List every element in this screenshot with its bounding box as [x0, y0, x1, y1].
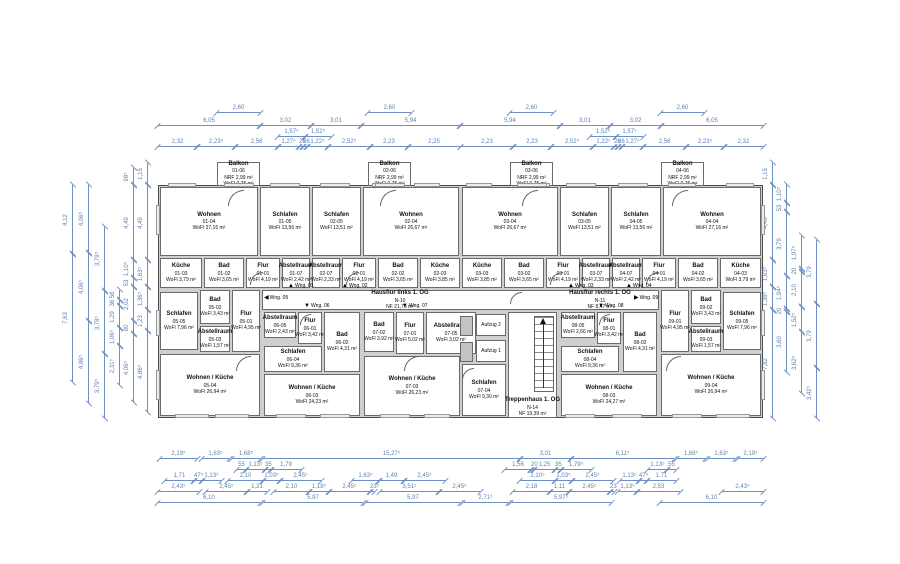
room-area: WoFl 26,67 m² [395, 225, 428, 231]
window-opening [565, 414, 595, 418]
stairwell-area: NF 19,39 m² [519, 411, 547, 417]
room-bad-07-02: Bad07-02WoFl 3,92 m² [364, 312, 394, 352]
room-name: Abstellraum [561, 315, 596, 323]
room-area: WoFl 13,51 m² [320, 225, 353, 231]
entrance-marker-6: ▼Wng. 06 [304, 303, 330, 309]
stair-flight [534, 316, 554, 392]
dimension-horizontal: 2,43⁵ [722, 491, 763, 492]
dimension-horizontal: 1,27⁵ [278, 146, 299, 147]
dimension-horizontal: 6,05 [158, 125, 260, 126]
room-flur-05-01: Flur05-01WoFl 4,95 m² [232, 290, 260, 352]
dimension-value: 1,27⁵ [622, 139, 643, 145]
room-area: WoFl 3,65 m² [209, 277, 239, 283]
room-area: WoFl 3,92 m² [364, 336, 394, 342]
dimension-horizontal: 2,45⁵ [439, 491, 480, 492]
dimension-vertical: 4,49 [772, 185, 773, 260]
dimension-value: 2,23⁵ [686, 139, 724, 145]
dimension-value: 2,43⁵ [158, 484, 199, 490]
dimension-horizontal: 1,49 [379, 480, 404, 481]
dimension-horizontal: 6,10 [660, 502, 763, 503]
room-bad-06-02: Bad06-02WoFl 4,31 m² [324, 312, 360, 372]
dimension-value: 2,53 [637, 484, 680, 490]
room-bad-08-02: Bad08-02WoFl 4,31 m² [623, 312, 657, 372]
entrance-marker-4: ▲Wng. 04 [626, 283, 652, 289]
dimension-horizontal: 3,02 [260, 125, 311, 126]
window-opening [270, 183, 300, 187]
room-name: Küche [473, 263, 491, 271]
dimension-vertical: 1,23 [147, 310, 148, 331]
dimension-horizontal: 1,21 [247, 491, 267, 492]
lift-label: Aufzug 1 [481, 348, 501, 354]
dimension-horizontal: 1,71 [647, 480, 676, 481]
dimension-vertical: 3,79⁵ [104, 227, 105, 291]
dimension-value: 4,06⁵ [124, 361, 130, 375]
room-schlafen-06-04: Schlafen06-04WoFl 9,36 m² [264, 346, 322, 372]
dimension-value: 1,03⁵ [555, 473, 572, 479]
room-area: WoFl 26,94 m² [194, 389, 227, 395]
dimension-value: 1,63⁵ [202, 451, 229, 457]
duct-shaft [460, 316, 473, 336]
dimension-vertical: 4,49 [147, 185, 148, 260]
room-name: Küche [431, 263, 449, 271]
dimension-value: 4,06⁵ [79, 212, 85, 226]
room-name: Küche [731, 263, 749, 271]
dimension-value: 53 [777, 204, 783, 211]
dimension-value: 2,02 [124, 298, 130, 310]
room-name: Wohnen / Küche [187, 375, 234, 383]
dimension-vertical: 2,02 [133, 287, 134, 321]
room-area: WoFl 27,16 m² [193, 225, 226, 231]
dimension-horizontal: 2,60 [661, 112, 704, 113]
dimension-value: 2,45⁵ [206, 484, 247, 490]
dimension-value: 2,45⁵ [572, 473, 613, 479]
dimension-vertical: 1,63⁵ [772, 260, 773, 287]
dimension-horizontal: 6,05 [661, 125, 763, 126]
dimension-horizontal: 23 [610, 491, 614, 492]
lift-aufzug-1: Aufzug 1 [476, 340, 506, 362]
dimension-horizontal: 1,79⁵ [561, 469, 591, 470]
room-area: WoFl 3,79 m² [166, 277, 196, 283]
room-name: Bad [692, 263, 703, 271]
dimension-value: 2,43⁵ [722, 484, 763, 490]
hall-name: Hausflur rechts 1. OG [569, 290, 631, 298]
dimension-value: 2,23 [370, 139, 408, 145]
window-opening [320, 183, 350, 187]
dimension-horizontal: 1,57⁵ [616, 136, 643, 137]
room-area: WoFl 4,95 m² [660, 325, 690, 331]
dimension-vertical: 1,52⁵ [801, 307, 802, 332]
room-area: WoFl 1,57 m² [691, 343, 721, 349]
room-kueche-03-03: Küche03-03WoFl 3,85 m² [462, 258, 502, 288]
dimension-value: 1,13⁵ [246, 462, 265, 468]
room-area: WoFl 3,42 m² [594, 332, 624, 338]
room-wohnen-kueche-06-03: Wohnen / Küche06-03WoFl 24,23 m² [264, 374, 360, 416]
room-abstellraum-02-07: Abstellraum02-07WoFl 2,33 m² [312, 258, 340, 288]
window-opening [761, 205, 765, 235]
room-name: Flur [557, 263, 568, 271]
dimension-value: 2,71⁵ [463, 495, 508, 501]
dimension-value: 5,94 [460, 118, 560, 124]
dimension-value: 1,06⁵ [110, 330, 116, 344]
dimension-value: 2,60 [661, 105, 704, 111]
dimension-value: 80 [124, 324, 130, 331]
room-abstellraum-05-03: Abstellraum05-03WoFl 1,57 m² [200, 326, 230, 352]
dimension-value: 1,18⁵ [309, 484, 329, 490]
dimension-value: 4,86⁵ [138, 364, 144, 378]
room-schlafen-05-05: Schlafen05-05WoFl 7,96 m² [160, 292, 198, 350]
dimension-horizontal: 2,45⁵ [206, 491, 247, 492]
dimension-value: 15,27⁵ [263, 451, 520, 457]
dimension-value: 3,79 [807, 266, 813, 278]
dimension-horizontal: 1,79 [271, 469, 301, 470]
window-opening [517, 183, 547, 187]
dimension-horizontal: 2,25 [408, 146, 460, 147]
room-area: WoFl 3,79 m² [726, 277, 756, 283]
room-name: Abstellraum [689, 329, 724, 337]
dimension-value: 3,78⁵ [95, 315, 101, 329]
entrance-label: Wng. 01 [295, 284, 314, 289]
dimension-horizontal: 5,97 [263, 502, 363, 503]
entrance-label: Wng. 06 [311, 304, 330, 309]
duct-shaft [460, 342, 473, 362]
dimension-horizontal: 1,22⁵ [307, 146, 328, 147]
dimension-value: 2,45⁵ [439, 484, 480, 490]
room-schlafen-03-05: Schlafen03-05WoFl 13,51 m² [560, 187, 609, 256]
dimension-vertical: 3,60 [786, 312, 787, 372]
dimension-horizontal: 2,52⁵ [328, 146, 370, 147]
room-name: Abstellraum [609, 263, 644, 271]
entrance-label: Wng. 03 [575, 284, 594, 289]
dimension-value: 3,62⁵ [792, 355, 798, 369]
room-name: Bad [336, 332, 347, 340]
dimension-horizontal: 5,97⁵ [511, 502, 611, 503]
room-name: Wohnen [197, 212, 221, 220]
dimension-horizontal: 2,45⁵ [329, 491, 370, 492]
dimension-vertical: 3,79 [816, 304, 817, 368]
room-area: WoFl 9,30 m² [469, 394, 499, 400]
dimension-horizontal: 1,68⁵ [232, 458, 260, 459]
dimension-value: 1,52⁵ [305, 129, 331, 135]
room-name: Bad [634, 332, 645, 340]
entrance-triangle-icon: ▶ [634, 295, 639, 301]
dimension-value: 1,57⁵ [278, 129, 305, 135]
dimension-value: 2,18 [513, 484, 550, 490]
dimension-vertical: 3,62⁵ [801, 332, 802, 393]
dimension-vertical: 1,15 [772, 163, 773, 185]
hall-label-hausflur-links-1-og: Hausflur links 1. OGN-10NF 21,76 m² [340, 290, 460, 310]
room-wohnen-02-04: Wohnen02-04WoFl 26,67 m² [363, 187, 459, 256]
dimension-horizontal: 6,11⁵ [571, 458, 674, 459]
room-name: Bad [373, 322, 384, 330]
room-area: WoFl 26,94 m² [695, 389, 728, 395]
room-name: Schlafen [471, 380, 496, 388]
dimension-value: 1,49 [379, 473, 404, 479]
dimension-horizontal: 2,10 [274, 491, 309, 492]
room-bad-04-02: Bad04-02WoFl 3,65 m² [678, 258, 718, 288]
dimension-horizontal: 1,63⁵ [202, 458, 229, 459]
dimension-value: 1,71 [647, 473, 676, 479]
dimension-value: 47⁵ [194, 473, 202, 479]
room-name: Flur [653, 263, 664, 271]
dimension-vertical: 2,10 [801, 272, 802, 307]
dimension-value: 2,52⁵ [328, 139, 370, 145]
room-area: WoFl 3,42 m² [295, 332, 325, 338]
window-opening [716, 414, 750, 418]
dimension-value: 1,68⁵ [232, 451, 260, 457]
dimension-vertical: 7,63 [72, 254, 73, 382]
dimension-value: 1,71 [165, 473, 194, 479]
dimension-value: 47⁵ [639, 473, 647, 479]
room-name: Bad [700, 297, 711, 305]
window-opening [224, 183, 254, 187]
dimension-value: 2,60 [217, 105, 260, 111]
room-area: WoFl 4,31 m² [625, 346, 655, 352]
dimension-value: 1,29 [110, 311, 116, 323]
dimension-value: 1,36⁵ [138, 291, 144, 305]
dimension-vertical: 1,94⁵ [786, 276, 787, 309]
balcony-name: Balkon [521, 161, 541, 169]
dimension-horizontal: 2,52⁵ [551, 146, 593, 147]
dimension-value: 4,06⁵ [79, 280, 85, 294]
dimension-value: 1,23 [138, 315, 144, 327]
dimension-value: 3,01 [311, 118, 361, 124]
room-name: Flur [240, 311, 251, 319]
dimension-horizontal: 1,68⁵ [677, 458, 705, 459]
dimension-value: 6,10 [660, 495, 763, 501]
dimension-horizontal: 1,22⁵ [593, 146, 614, 147]
dimension-vertical: 1,97⁵ [801, 236, 802, 269]
dimension-value: 2,23 [461, 139, 513, 145]
window-opening [618, 183, 648, 187]
dimension-value: 3,79⁵ [95, 379, 101, 393]
window-opening [424, 414, 450, 418]
dimension-value: 1,63⁵ [708, 451, 735, 457]
dimension-value: 3,79 [807, 330, 813, 342]
entrance-marker-1: ▲Wng. 01 [288, 283, 314, 289]
room-area: WoFl 1,57 m² [200, 343, 230, 349]
dimension-value: 2,32 [158, 139, 197, 145]
dimension-value: 1,94⁵ [777, 285, 783, 299]
dimension-horizontal: 6,10 [158, 502, 260, 503]
room-name: Wohnen [399, 212, 423, 220]
room-area: WoFl 5,02 m² [395, 337, 425, 343]
room-area: WoFl 7,96 m² [164, 325, 194, 331]
room-kueche-02-03: Küche02-03WoFl 3,85 m² [420, 258, 460, 288]
balcony-name: Balkon [228, 161, 248, 169]
room-name: Flur [404, 323, 415, 331]
dimension-value: 1,10⁵ [777, 187, 783, 201]
dimension-value: 3,42⁵ [807, 386, 813, 400]
balcony-name: Balkon [672, 161, 692, 169]
dimension-value: 20 [777, 307, 783, 314]
dimension-value: 1,15 [763, 168, 769, 180]
dimension-value: 3,79 [777, 238, 783, 250]
dimension-horizontal: 2,32 [724, 146, 763, 147]
dimension-value: 1,57⁵ [616, 129, 643, 135]
room-area: WoFl 3,43 m² [200, 311, 230, 317]
room-area: WoFl 9,36 m² [278, 363, 308, 369]
dimension-horizontal: 2,19⁵ [738, 458, 763, 459]
dimension-horizontal: 2,23⁵ [197, 146, 235, 147]
room-area: WoFl 4,31 m² [327, 346, 357, 352]
dimension-value: 2,45⁵ [329, 484, 370, 490]
room-schlafen-02-05: Schlafen02-05WoFl 13,51 m² [312, 187, 361, 256]
dimension-vertical: 4,86⁵ [147, 331, 148, 412]
dimension-value: 20 [792, 267, 798, 274]
window-opening [156, 370, 160, 400]
dimension-value: 4,49 [138, 217, 144, 229]
dimension-value: 2,45⁵ [569, 484, 610, 490]
dimension-horizontal: 55 [667, 469, 676, 470]
entrance-marker-8: ▼Wng. 08 [598, 303, 624, 309]
entrance-label: Wng. 08 [605, 304, 624, 309]
dimension-horizontal: 2,45⁵ [280, 480, 321, 481]
room-schlafen-04-05: Schlafen04-05WoFl 13,56 m² [611, 187, 661, 256]
dimension-vertical: 3,42⁵ [816, 368, 817, 418]
room-area: WoFl 13,51 m² [568, 225, 601, 231]
dimension-value: 2,23 [513, 139, 551, 145]
dimension-vertical: 4,06⁵ [88, 185, 89, 253]
dimension-horizontal: 2,56 [643, 146, 686, 147]
window-opening [761, 310, 765, 336]
dimension-value: 2,10 [274, 484, 309, 490]
window-opening [276, 414, 306, 418]
room-flur-09-01: Flur09-01WoFl 4,95 m² [661, 290, 689, 352]
room-kueche-04-03: Küche04-03WoFl 3,79 m² [720, 258, 761, 288]
dimension-value: 2,45⁵ [280, 473, 321, 479]
dimension-value: 2,60 [510, 105, 553, 111]
window-opening [726, 183, 754, 187]
dimension-value: 1,52⁵ [590, 129, 616, 135]
dimension-value: 3,79⁵ [95, 252, 101, 266]
lift-aufzug-2: Aufzug 2 [476, 314, 506, 336]
window-opening [612, 414, 642, 418]
dimension-value: 3,02 [610, 118, 661, 124]
dimension-value: 5,97 [263, 495, 363, 501]
dimension-horizontal: 2,45⁵ [569, 491, 610, 492]
dimension-horizontal: 2,32 [158, 146, 197, 147]
dimension-value: 6,05 [158, 118, 260, 124]
room-schlafen-08-04: Schlafen08-04WoFl 9,36 m² [561, 346, 619, 372]
dimension-vertical: 1,38⁵ [772, 287, 773, 310]
dimension-value: 1,15 [138, 168, 144, 180]
dimension-value: 58 [110, 292, 116, 299]
dimension-value: 7,63 [63, 312, 69, 324]
room-area: WoFl 24,23 m² [296, 399, 329, 405]
dimension-horizontal: 2,23 [370, 146, 408, 147]
dimension-horizontal: 1,52⁵ [590, 136, 616, 137]
room-schlafen-09-05: Schlafen09-05WoFl 7,96 m² [723, 292, 761, 350]
room-name: Schlafen [729, 311, 754, 319]
dimension-value: 1,68⁵ [677, 451, 705, 457]
room-name: Bad [218, 263, 229, 271]
dimension-horizontal: 2,10⁵ [520, 480, 555, 481]
room-abstellraum-06-05: Abstellraum06-05WoFl 2,43 m² [264, 312, 296, 338]
room-bad-05-02: Bad05-02WoFl 3,43 m² [200, 290, 230, 324]
entrance-triangle-icon: ▲ [288, 283, 294, 289]
window-opening [156, 310, 160, 336]
dimension-value: 1,22⁵ [593, 139, 614, 145]
dimension-value: 3,02 [260, 118, 311, 124]
dimension-vertical: 1,36⁵ [147, 287, 148, 310]
dimension-horizontal: 2,56 [235, 146, 278, 147]
room-area: WoFl 3,65 m² [683, 277, 713, 283]
room-name: Schlafen [272, 212, 297, 220]
dimension-value: 1,13⁵ [618, 484, 637, 490]
room-name: Schlafen [166, 311, 191, 319]
window-opening [380, 414, 410, 418]
dimension-value: 2,60 [368, 105, 411, 111]
entrance-label: Wng. 04 [633, 284, 652, 289]
dimension-value: 2,10 [228, 473, 263, 479]
room-name: Wohnen [700, 212, 724, 220]
dimension-value: 4,12 [63, 214, 69, 226]
dimension-horizontal: 1,57⁵ [278, 136, 305, 137]
dimension-value: 1,13⁵ [620, 473, 639, 479]
room-name: Abstellraum [198, 329, 233, 337]
window-opening [320, 414, 350, 418]
room-area: WoFl 2,66 m² [563, 329, 593, 335]
dimension-horizontal: 5,97 [366, 502, 460, 503]
room-name: Bad [209, 297, 220, 305]
dimension-value: 5,97 [366, 495, 460, 501]
dimension-vertical: 3,79 [786, 212, 787, 276]
dimension-value: 2,31⁵ [110, 358, 116, 372]
entrance-marker-3: ▲Wng. 03 [568, 283, 594, 289]
entrance-marker-9: ▶Wng. 09 [634, 295, 658, 301]
dimension-value: 55 [667, 462, 676, 468]
dimension-value: 1,27⁵ [278, 139, 299, 145]
dimension-value: 98⁵ [124, 172, 130, 181]
dimension-value: 2,23⁵ [197, 139, 235, 145]
dimension-value: 2,52⁵ [551, 139, 593, 145]
dimension-vertical: 1,15 [147, 163, 148, 185]
dimension-value: 1,03⁵ [263, 473, 280, 479]
window-opening [168, 183, 196, 187]
lift-label: Aufzug 2 [481, 322, 501, 328]
dimension-horizontal: 1,71 [165, 480, 194, 481]
window-opening [175, 414, 209, 418]
dimension-value: 1,13⁵ [202, 473, 221, 479]
dimension-value: 1,63⁵ [138, 266, 144, 280]
room-area: WoFl 4,95 m² [231, 325, 261, 331]
room-name: Bad [518, 263, 529, 271]
dimension-horizontal: 1,13⁵ [202, 480, 221, 481]
window-opening [414, 183, 440, 187]
dimension-value: 1,38⁵ [763, 291, 769, 305]
window-opening [566, 183, 596, 187]
dimension-vertical: 4,12 [72, 185, 73, 254]
dimension-value: 36 [110, 300, 116, 307]
room-area: WoFl 13,56 m² [269, 225, 302, 231]
room-area: WoFl 27,16 m² [696, 225, 729, 231]
dimension-value: 3,51⁵ [380, 484, 439, 490]
room-area: WoFl 13,56 m² [620, 225, 653, 231]
entrance-triangle-icon: ▼ [304, 303, 310, 309]
stair-direction-line [543, 322, 544, 388]
dimension-horizontal: 3,51⁵ [380, 491, 439, 492]
dimension-vertical: 2,31⁵ [119, 346, 120, 385]
dimension-value: 3,01 [560, 118, 610, 124]
dimension-value: 55 [237, 462, 246, 468]
room-bad-09-02: Bad09-02WoFl 3,43 m² [691, 290, 721, 324]
dimension-horizontal: 2,45⁵ [404, 480, 445, 481]
room-name: Küche [172, 263, 190, 271]
dimension-vertical: 3,79⁵ [104, 354, 105, 418]
room-area: WoFl 26,23 m² [396, 390, 429, 396]
dimension-value: 2,19⁵ [738, 451, 763, 457]
dimension-value: 1,79⁵ [561, 462, 591, 468]
